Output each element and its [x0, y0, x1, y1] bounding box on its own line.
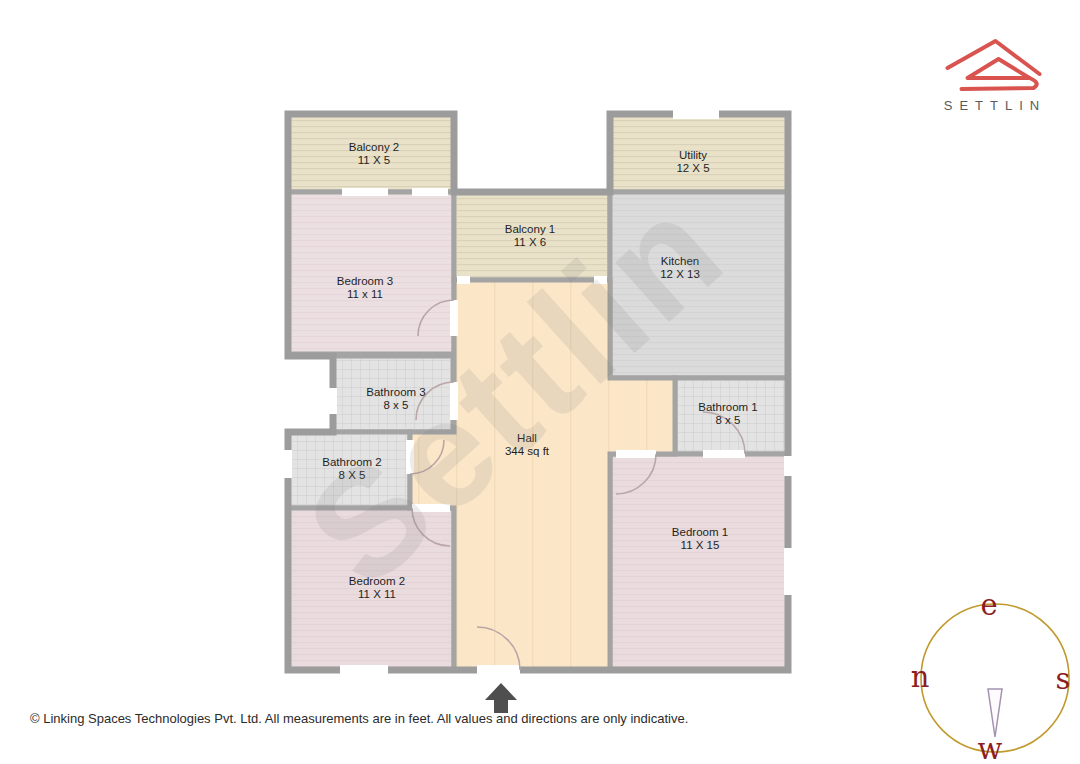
- settlin-logo-icon: [938, 32, 1053, 94]
- copyright-text: © Linking Spaces Technologies Pvt. Ltd. …: [30, 711, 688, 726]
- room-label-bathroom1: Bathroom 18 x 5: [698, 401, 757, 427]
- floor-plan-page: Balcony 211 X 5 Utility12 X 5 Balcony 11…: [0, 0, 1080, 764]
- settlin-logo-text: SETTLIN: [920, 98, 1070, 113]
- door-gap-bathroom1: [703, 450, 745, 458]
- window-balcony2-a: [342, 188, 388, 196]
- room-label-balcony2: Balcony 211 X 5: [349, 141, 400, 167]
- door-gap-bathroom3: [450, 382, 458, 420]
- compass-letter-s: s: [1056, 665, 1071, 694]
- room-label-bedroom3: Bedroom 311 x 11: [337, 275, 393, 301]
- room-label-bathroom3: Bathroom 38 x 5: [366, 386, 425, 412]
- window-balcony1-b: [594, 276, 607, 284]
- compass-needle: [988, 689, 1002, 737]
- window-balcony2-b: [412, 188, 448, 196]
- room-label-bedroom2: Bedroom 211 X 11: [349, 575, 405, 601]
- compass-letter-w: w: [978, 735, 1003, 764]
- room-label-kitchen: Kitchen12 X 13: [660, 255, 700, 281]
- door-gap-bathroom2: [406, 440, 414, 474]
- window-bathroom3: [329, 388, 337, 414]
- window-bathroom2: [284, 450, 292, 478]
- compass-letter-e: e: [980, 591, 997, 620]
- window-balcony1-a: [457, 276, 470, 284]
- opening-utility: [673, 109, 719, 119]
- door-gap-entrance: [477, 665, 520, 675]
- window-bedroom1-a: [784, 456, 792, 476]
- window-bedroom2: [340, 665, 388, 675]
- north-arrow-icon: [485, 683, 517, 713]
- door-gap-bedroom2: [412, 504, 450, 512]
- window-bedroom1-b: [784, 548, 792, 595]
- room-label-bathroom2: Bathroom 28 X 5: [322, 456, 381, 482]
- compass-letter-n: n: [911, 663, 930, 692]
- door-gap-bedroom3: [450, 300, 458, 336]
- settlin-logo: SETTLIN: [920, 32, 1070, 113]
- room-label-hall: Hall344 sq ft: [505, 432, 549, 458]
- door-gap-bedroom1: [616, 450, 656, 458]
- room-label-bedroom1: Bedroom 111 X 15: [672, 526, 728, 552]
- room-label-balcony1: Balcony 111 X 6: [505, 223, 556, 249]
- compass-rose: e n s w: [915, 588, 1075, 764]
- room-label-utility: Utility12 X 5: [676, 149, 709, 175]
